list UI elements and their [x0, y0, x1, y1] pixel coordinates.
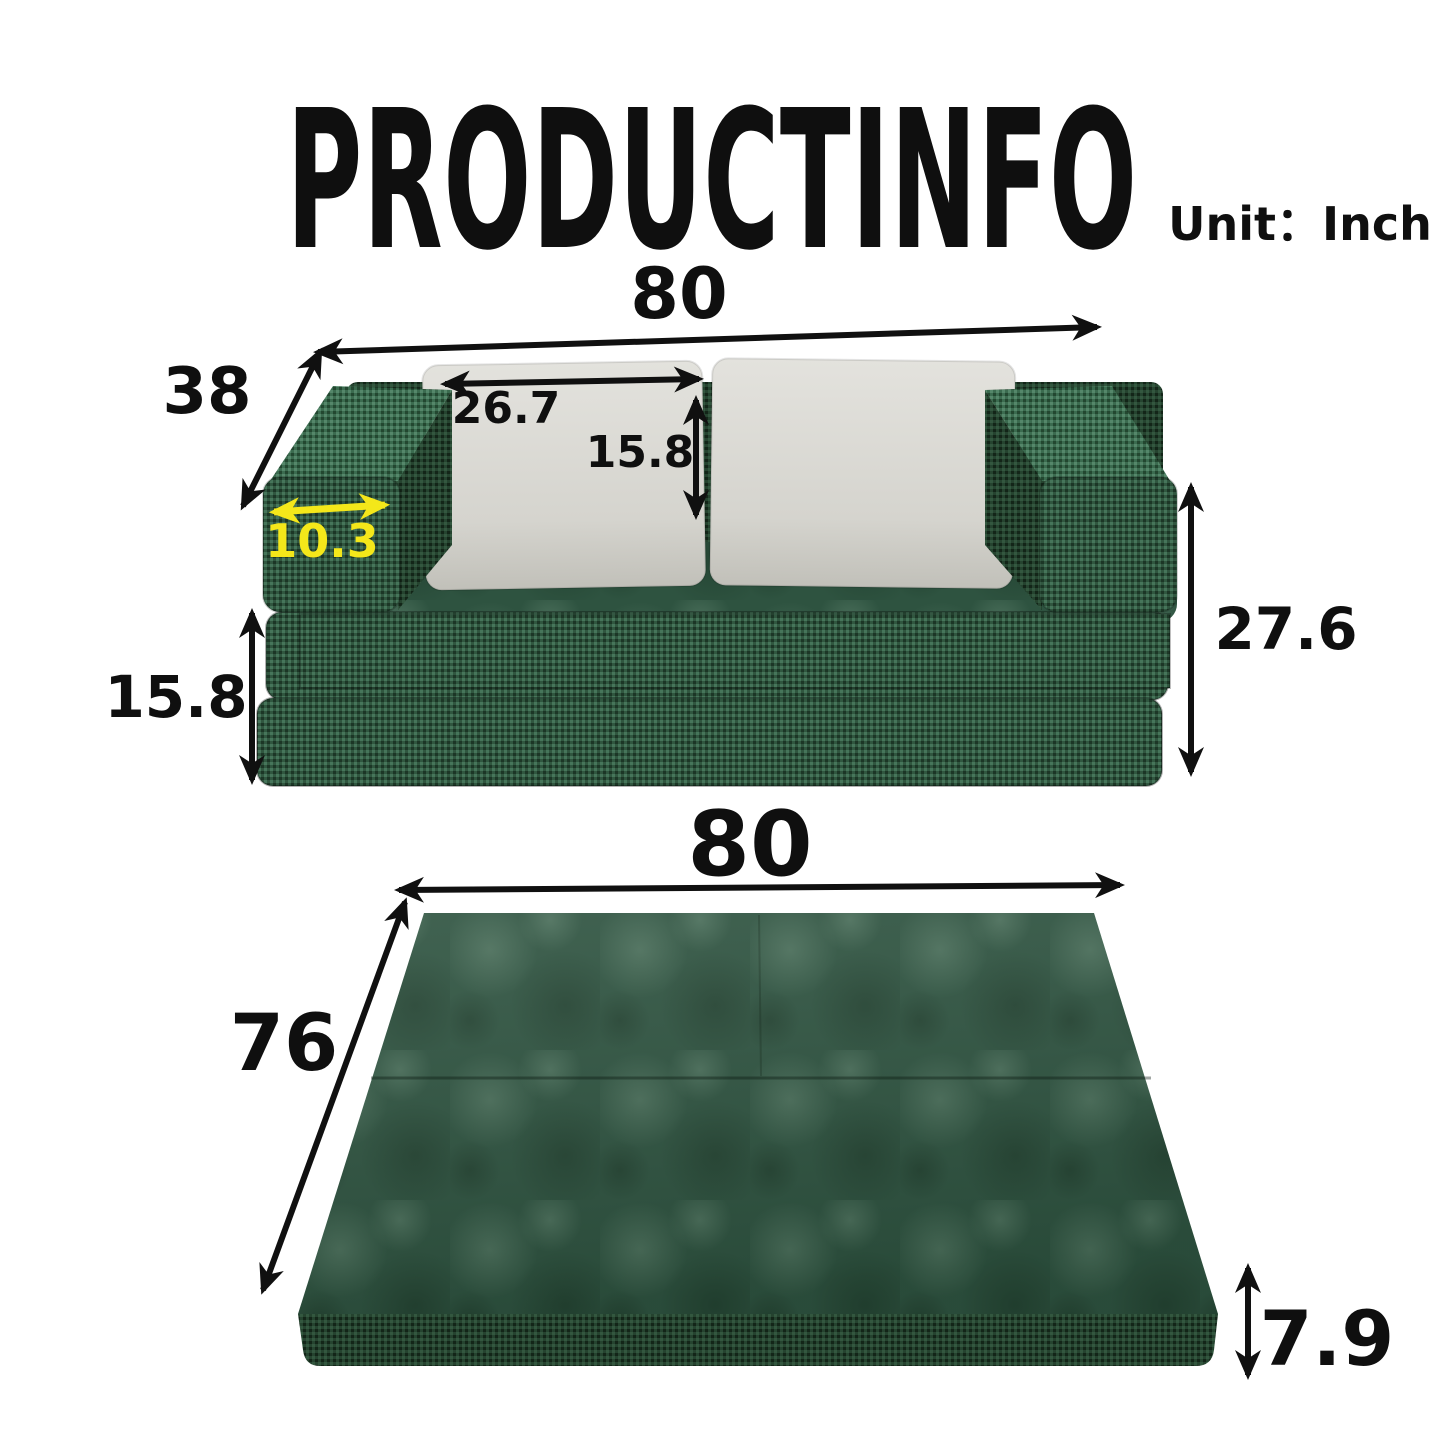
- left-armrest: [263, 386, 452, 612]
- bed-depth-label: 76: [230, 1005, 339, 1083]
- right-pillow: [710, 358, 1016, 589]
- bed-top-sheen: [298, 913, 1218, 1314]
- bed-thickness-label: 7.9: [1260, 1301, 1395, 1377]
- sofa-depth-label: 38: [162, 360, 251, 424]
- base-layer-2: [257, 698, 1162, 786]
- sofa-width-label: 80: [630, 259, 727, 329]
- sofa-total-height-label: 27.6: [1214, 600, 1357, 658]
- bed-front-face: [298, 1314, 1218, 1366]
- bed-width-label: 80: [687, 800, 812, 890]
- product-info-sheet: PRODUCTINFO Unit：Inch 80 38 26.7 15.8 10…: [0, 0, 1445, 1445]
- pillow-width-label: 26.7: [452, 387, 561, 431]
- page-title: PRODUCTINFO: [286, 86, 1137, 278]
- sofa-base-height-label: 15.8: [104, 668, 247, 726]
- pillow-height-label: 15.8: [586, 431, 695, 475]
- seat-front-face: [300, 614, 1170, 688]
- mattress-illustration: [298, 913, 1218, 1366]
- unit-label: Unit：Inch: [1168, 201, 1432, 247]
- armrest-width-label: 10.3: [265, 518, 379, 564]
- sofa-illustration: [257, 358, 1177, 786]
